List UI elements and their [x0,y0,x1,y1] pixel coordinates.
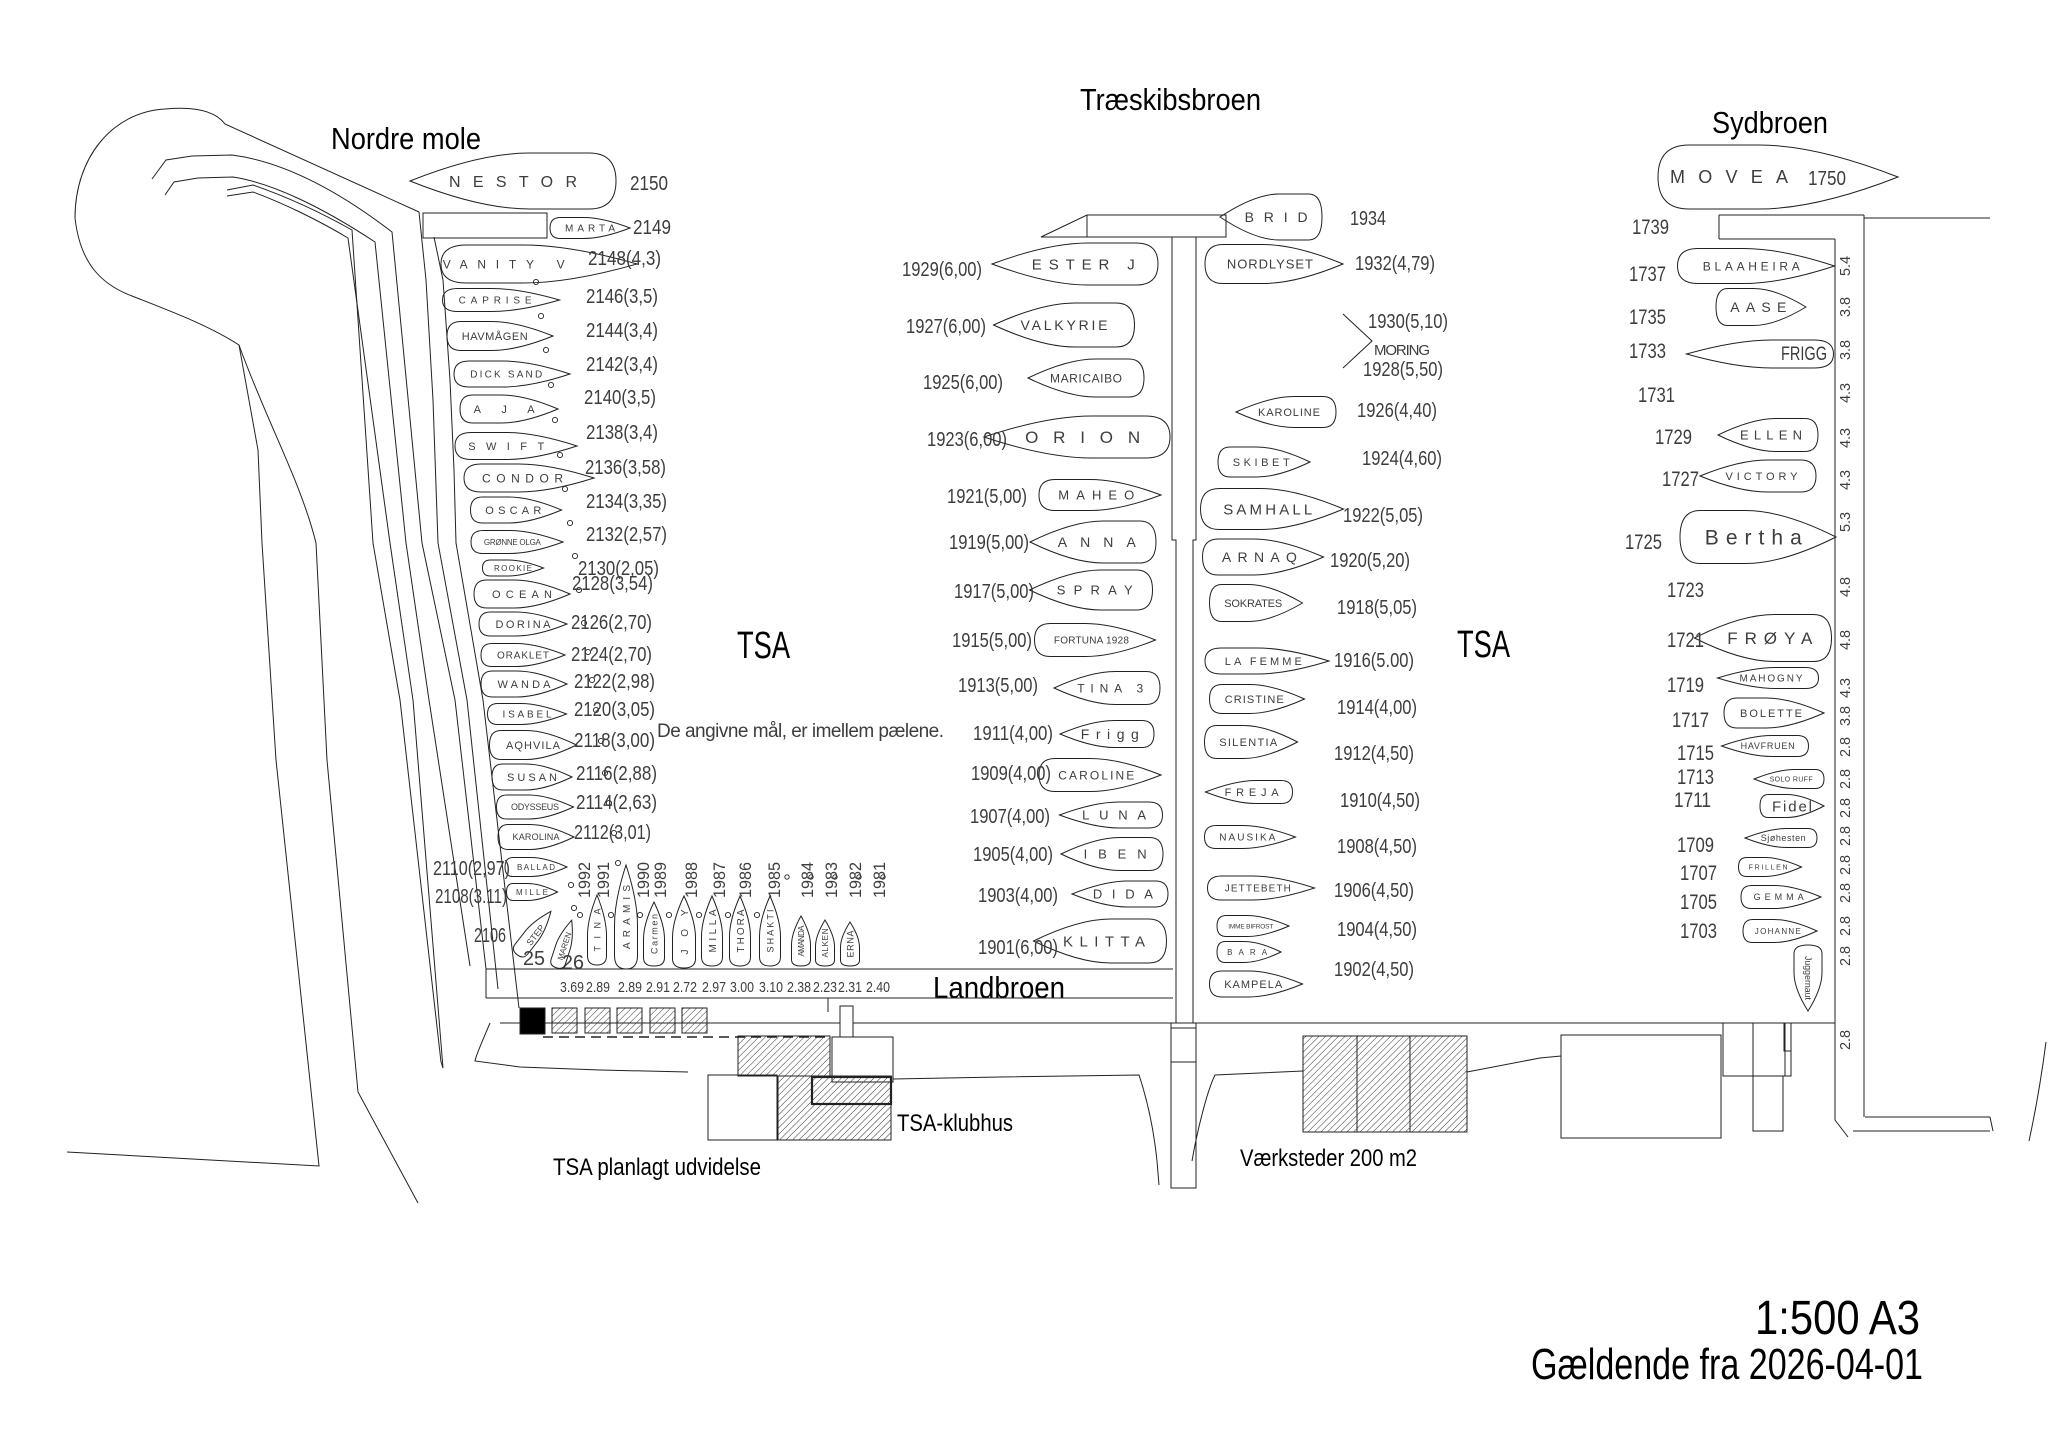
svg-text:AMANDA: AMANDA [797,925,806,957]
svg-text:1910(4,50): 1910(4,50) [1340,790,1420,812]
svg-text:MILLA: MILLA [708,909,719,952]
svg-text:1719: 1719 [1667,674,1704,697]
svg-text:ORAKLET: ORAKLET [497,651,549,662]
svg-text:2132(2,57): 2132(2,57) [586,524,667,546]
svg-text:2149: 2149 [633,217,671,239]
svg-text:SOKRATES: SOKRATES [1224,598,1282,610]
svg-text:5.4: 5.4 [1837,256,1854,276]
svg-text:KAROLINE: KAROLINE [1258,407,1320,419]
svg-text:2.38: 2.38 [787,979,811,996]
svg-text:2.8: 2.8 [1837,855,1854,875]
svg-text:1916(5.00): 1916(5.00) [1334,650,1414,672]
svg-text:1983: 1983 [822,862,841,898]
svg-text:FORTUNA 1928: FORTUNA 1928 [1054,636,1129,647]
svg-text:26: 26 [562,952,584,974]
svg-text:1713: 1713 [1677,766,1714,789]
svg-text:1715: 1715 [1677,742,1714,765]
svg-text:SOLO RUFF: SOLO RUFF [1770,777,1813,784]
svg-text:1917(5,00): 1917(5,00) [954,581,1034,603]
svg-text:2.8: 2.8 [1837,769,1854,789]
svg-text:2.8: 2.8 [1837,1030,1854,1050]
svg-text:1705: 1705 [1680,891,1717,914]
svg-text:3.00: 3.00 [730,979,754,996]
svg-text:1918(5,05): 1918(5,05) [1337,597,1417,619]
svg-text:TSA planlagt udvidelse: TSA planlagt udvidelse [553,1154,761,1181]
svg-text:3.10: 3.10 [759,979,783,996]
svg-text:KAROLINA: KAROLINA [513,832,560,842]
svg-text:2126(2,70): 2126(2,70) [571,612,652,634]
svg-text:1915(5,00): 1915(5,00) [952,630,1032,652]
svg-text:HAVFRUEN: HAVFRUEN [1741,741,1795,751]
svg-text:TSA: TSA [1457,624,1510,666]
svg-text:2.8: 2.8 [1837,883,1854,903]
svg-text:2146(3,5): 2146(3,5) [586,286,658,308]
svg-text:1717: 1717 [1672,709,1709,732]
svg-text:ERNA: ERNA [845,931,855,958]
svg-text:4.3: 4.3 [1837,678,1854,698]
svg-text:2106: 2106 [474,925,506,947]
svg-text:1727: 1727 [1662,468,1699,491]
svg-text:4.3: 4.3 [1837,428,1854,448]
svg-text:De angivne mål, er imellem pæl: De angivne mål, er imellem pælene. [657,721,944,742]
svg-text:3.69: 3.69 [560,979,584,996]
svg-text:2108(3.11): 2108(3.11) [435,886,507,908]
svg-text:1901(6,00): 1901(6,00) [978,937,1058,959]
svg-text:4.3: 4.3 [1837,383,1854,403]
svg-text:2116(2,88): 2116(2,88) [576,763,657,785]
svg-text:1906(4,50): 1906(4,50) [1334,880,1414,902]
svg-text:1986: 1986 [736,862,755,898]
svg-text:Gældende fra 2026-04-01: Gældende fra 2026-04-01 [1531,1340,1923,1389]
svg-text:2.89: 2.89 [618,979,642,996]
svg-text:Sjøhesten: Sjøhesten [1761,833,1806,843]
svg-text:TSA: TSA [737,625,790,667]
svg-text:1932(4,79): 1932(4,79) [1355,253,1435,275]
svg-text:2148(4,3): 2148(4,3) [588,248,661,270]
svg-text:1:500 A3: 1:500 A3 [1755,1292,1920,1345]
svg-text:1989: 1989 [651,862,670,898]
svg-text:WANDA: WANDA [498,679,552,691]
svg-text:Fidel: Fidel [1772,798,1812,815]
svg-text:1928(5,50): 1928(5,50) [1363,359,1443,381]
svg-text:2134(3,35): 2134(3,35) [586,491,667,513]
svg-text:2.8: 2.8 [1837,916,1854,936]
svg-text:4.8: 4.8 [1837,577,1854,597]
svg-text:1731: 1731 [1638,384,1675,407]
svg-text:2.72: 2.72 [673,979,697,996]
svg-text:25: 25 [523,948,545,970]
svg-text:MILLE: MILLE [516,888,548,897]
svg-text:2144(3,4): 2144(3,4) [586,320,658,342]
svg-text:2140(3,5): 2140(3,5) [584,387,656,409]
svg-text:3.8: 3.8 [1837,706,1854,726]
svg-text:2.89: 2.89 [586,979,610,996]
svg-text:1934: 1934 [1350,208,1386,230]
svg-text:2114(2,63): 2114(2,63) [576,792,657,814]
svg-text:1707: 1707 [1680,862,1717,885]
svg-text:2150: 2150 [630,173,668,195]
svg-text:1905(4,00): 1905(4,00) [973,844,1053,866]
svg-text:OSCAR: OSCAR [485,505,541,517]
svg-text:AQHVILA: AQHVILA [506,740,561,752]
svg-text:MAHOGNY: MAHOGNY [1740,674,1803,685]
svg-text:Værksteder 200 m2: Værksteder 200 m2 [1240,1145,1417,1172]
svg-text:1902(4,50): 1902(4,50) [1334,959,1414,981]
svg-text:ROOKIE: ROOKIE [494,564,532,573]
svg-text:MARICAIBO: MARICAIBO [1050,371,1122,385]
svg-text:2.40: 2.40 [866,979,890,996]
svg-text:GRØNNE OLGA: GRØNNE OLGA [484,538,542,547]
svg-text:1721: 1721 [1667,629,1704,652]
svg-text:1903(4,00): 1903(4,00) [978,885,1058,907]
svg-text:1723: 1723 [1667,579,1704,602]
svg-text:2.8: 2.8 [1837,826,1854,846]
svg-text:1987: 1987 [710,862,729,898]
svg-text:1927(6,00): 1927(6,00) [906,316,986,338]
svg-text:NORDLYSET: NORDLYSET [1227,257,1313,272]
svg-text:2124(2,70): 2124(2,70) [571,644,652,666]
svg-text:2122(2,98): 2122(2,98) [574,671,655,693]
svg-text:1725: 1725 [1625,531,1662,554]
svg-text:1982: 1982 [846,862,865,898]
svg-text:FRIGG: FRIGG [1781,344,1827,365]
svg-text:1908(4,50): 1908(4,50) [1337,836,1417,858]
svg-text:Sydbroen: Sydbroen [1712,105,1828,140]
svg-text:JETTEBETH: JETTEBETH [1225,884,1291,895]
svg-text:3.8: 3.8 [1837,340,1854,360]
svg-text:2120(3,05): 2120(3,05) [574,699,655,721]
svg-text:1711: 1711 [1674,789,1711,812]
svg-text:CAROLINE: CAROLINE [1058,768,1134,782]
svg-text:2128(3,54): 2128(3,54) [572,573,653,595]
svg-text:ALKEN: ALKEN [821,928,830,957]
svg-text:2.8: 2.8 [1837,946,1854,966]
svg-text:1919(5,00): 1919(5,00) [949,532,1029,554]
svg-text:1922(5,05): 1922(5,05) [1343,505,1423,527]
svg-text:MARTA: MARTA [565,224,615,235]
svg-text:2.23: 2.23 [813,979,837,996]
svg-text:2118(3,00): 2118(3,00) [574,730,655,752]
svg-text:SILENTIA: SILENTIA [1219,737,1278,749]
svg-text:IMME BIFROST: IMME BIFROST [1228,923,1273,930]
svg-text:1739: 1739 [1632,216,1669,239]
svg-text:4.3: 4.3 [1837,470,1854,490]
svg-text:1988: 1988 [682,862,701,898]
svg-text:SAMHALL: SAMHALL [1223,501,1312,518]
svg-text:2.97: 2.97 [702,979,726,996]
svg-text:Carmen: Carmen [649,914,659,954]
svg-text:KAMPELA: KAMPELA [1224,979,1283,991]
svg-text:2.8: 2.8 [1837,798,1854,818]
svg-text:1735: 1735 [1629,306,1666,329]
svg-text:1920(5,20): 1920(5,20) [1330,550,1410,572]
svg-text:1930(5,10): 1930(5,10) [1368,311,1448,333]
svg-text:1912(4,50): 1912(4,50) [1334,743,1414,765]
svg-text:2112(3,01): 2112(3,01) [574,822,651,844]
svg-text:2.8: 2.8 [1837,737,1854,757]
svg-text:TSA-klubhus: TSA-klubhus [897,1110,1013,1137]
svg-text:1929(6,00): 1929(6,00) [902,259,982,281]
svg-text:LA FEMME: LA FEMME [1225,656,1302,668]
svg-text:1925(6,00): 1925(6,00) [923,372,1003,394]
svg-text:3.8: 3.8 [1837,297,1854,317]
svg-text:1907(4,00): 1907(4,00) [970,806,1050,828]
svg-text:1904(4,50): 1904(4,50) [1337,919,1417,941]
svg-text:1984: 1984 [798,862,817,898]
svg-text:1913(5,00): 1913(5,00) [958,675,1038,697]
svg-text:Landbroen: Landbroen [933,970,1065,1005]
svg-text:Juggernaut: Juggernaut [1803,956,1813,1000]
svg-text:Træskibsbroen: Træskibsbroen [1080,82,1261,117]
svg-text:1924(4,60): 1924(4,60) [1362,448,1442,470]
svg-text:1729: 1729 [1655,426,1692,449]
svg-text:1985: 1985 [765,862,784,898]
svg-text:BLAAHEIRA: BLAAHEIRA [1703,259,1800,273]
svg-text:2110(2,97): 2110(2,97) [433,858,510,880]
svg-text:FRILLEN: FRILLEN [1749,865,1788,872]
svg-text:JOHANNE: JOHANNE [1755,927,1801,936]
svg-text:5.3: 5.3 [1837,512,1854,532]
svg-text:1911(4,00): 1911(4,00) [973,723,1053,745]
svg-text:1923(6,00): 1923(6,00) [927,429,1007,451]
svg-text:2142(3,4): 2142(3,4) [586,354,658,376]
svg-text:1750: 1750 [1808,168,1846,190]
svg-text:1733: 1733 [1629,340,1666,363]
svg-text:2.91: 2.91 [646,979,670,996]
svg-text:2.31: 2.31 [838,979,862,996]
svg-text:1991: 1991 [594,862,613,898]
svg-text:1909(4,00): 1909(4,00) [971,763,1051,785]
svg-text:1709: 1709 [1677,834,1714,857]
svg-text:1981: 1981 [870,862,889,898]
svg-text:1737: 1737 [1629,263,1666,286]
svg-text:HAVMÅGEN: HAVMÅGEN [462,330,528,343]
svg-text:4.8: 4.8 [1837,630,1854,650]
svg-text:2138(3,4): 2138(3,4) [586,422,658,444]
svg-text:CRISTINE: CRISTINE [1225,694,1284,706]
svg-text:1926(4,40): 1926(4,40) [1357,400,1437,422]
svg-text:Nordre mole: Nordre mole [331,121,481,156]
svg-text:1992: 1992 [575,862,594,898]
svg-text:ODYSSEUS: ODYSSEUS [511,802,559,812]
svg-text:1703: 1703 [1680,920,1717,943]
svg-text:1921(5,00): 1921(5,00) [947,486,1027,508]
svg-text:MORING: MORING [1374,342,1430,359]
svg-text:2136(3,58): 2136(3,58) [585,457,666,479]
svg-text:1914(4,00): 1914(4,00) [1337,697,1417,719]
